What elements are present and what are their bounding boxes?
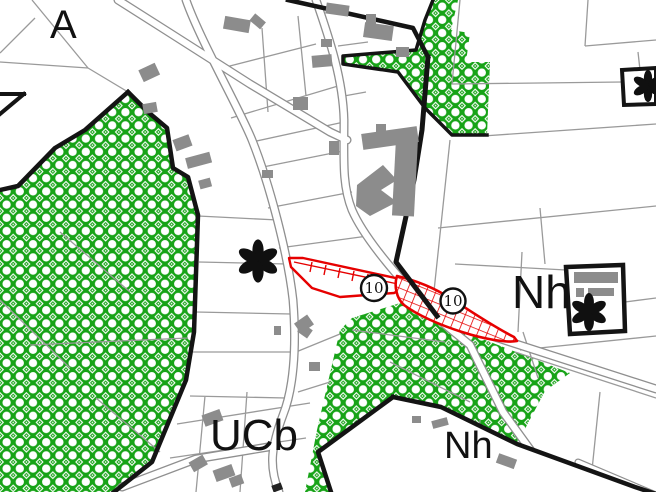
reserved-plot-badge-1: 10 <box>361 275 387 301</box>
heritage-box-northeast <box>622 68 656 105</box>
heritage-box-east <box>566 265 625 334</box>
rosette-icon-center <box>236 239 279 282</box>
zone-label-a: A <box>50 3 77 47</box>
zone-label-nh-east: Nh <box>512 266 571 318</box>
badge-number: 10 <box>443 292 462 310</box>
zoning-map-canvas: 10 10 A Nh UCb Nh <box>0 0 656 492</box>
zoning-map: 10 10 A Nh UCb Nh <box>0 0 656 492</box>
boundary-topleft-corner <box>0 94 24 114</box>
zone-label-ucb: UCb <box>210 411 298 460</box>
wooded-area-west <box>0 92 198 492</box>
badge-number: 10 <box>364 279 383 297</box>
reserved-plot-badge-2: 10 <box>441 289 466 314</box>
zone-label-nh-south: Nh <box>444 425 493 467</box>
